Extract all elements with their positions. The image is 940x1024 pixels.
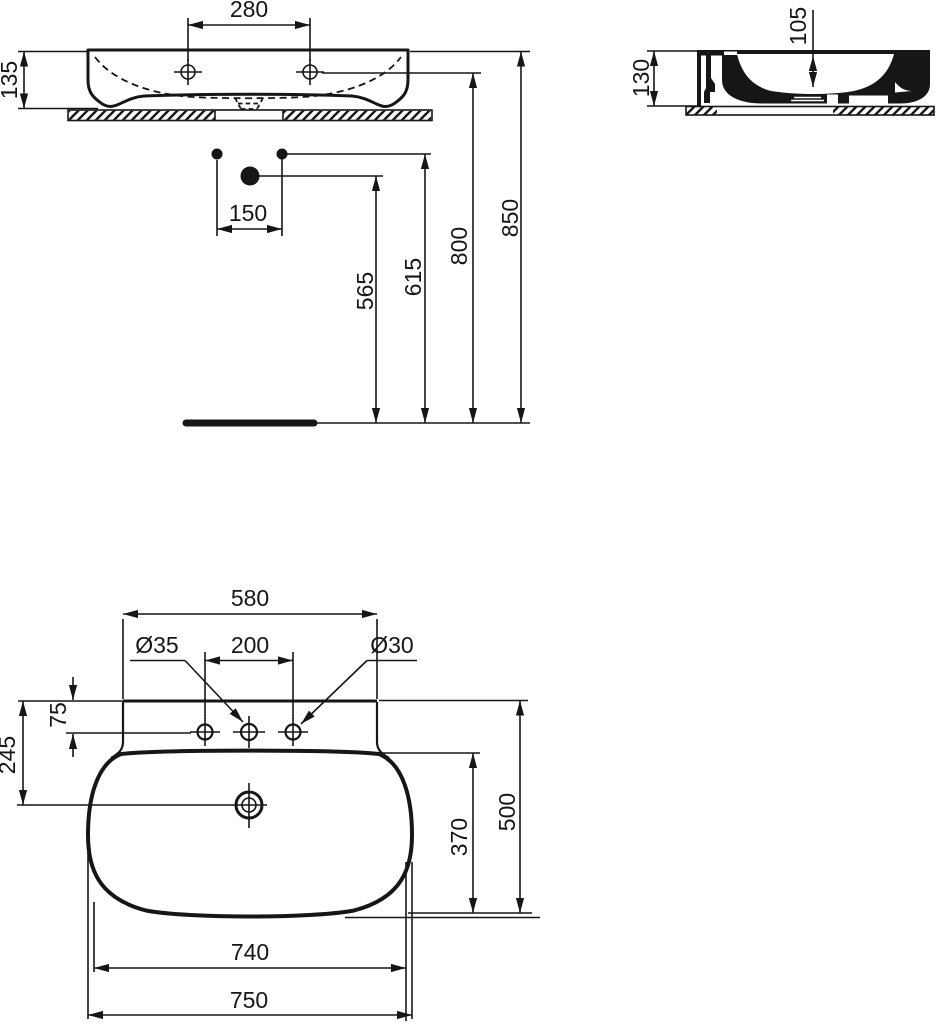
dim-500-label: 500 (494, 793, 520, 831)
dim-740-label: 740 (231, 939, 269, 965)
dim-750-label: 750 (230, 987, 268, 1013)
dim-615: 615 (400, 154, 426, 423)
dim-200: 200 (205, 632, 293, 719)
dim-75: 75 (45, 677, 73, 757)
dim-580-label: 580 (231, 585, 269, 611)
dim-800: 800 (446, 73, 473, 423)
front-view: 280 135 150 (0, 0, 530, 423)
dim-800-label: 800 (446, 227, 472, 265)
dim-105-label: 105 (785, 7, 811, 45)
washbasin-dimension-drawing: 280 135 150 (0, 0, 940, 1024)
dim-150: 150 (217, 200, 282, 229)
side-wall-bracket (704, 55, 715, 103)
dim-75-label: 75 (45, 702, 71, 728)
front-drain-dashed (235, 98, 263, 109)
callout-dia-35: Ø35 (130, 632, 243, 722)
dim-850-label: 850 (497, 199, 523, 237)
callout-dia-35-label: Ø35 (135, 632, 178, 658)
dim-500: 500 (494, 701, 520, 914)
dim-245-label: 245 (0, 736, 20, 774)
dim-850: 850 (497, 52, 523, 424)
dim-370: 370 (446, 753, 473, 913)
side-view: 130 105 (628, 7, 934, 115)
front-counter-section (68, 110, 432, 121)
plan-bowl-outline (88, 751, 412, 917)
side-counter-section (686, 107, 934, 116)
dim-130-label: 130 (628, 59, 654, 97)
callout-dia-30: Ø30 (301, 632, 417, 724)
dim-565-label: 565 (352, 272, 378, 310)
side-left-edge (697, 50, 701, 106)
technical-drawing-page: 280 135 150 (0, 0, 940, 1024)
fixing-dot-left (212, 149, 223, 160)
dim-615-label: 615 (400, 258, 426, 296)
callout-dia-30-label: Ø30 (370, 632, 413, 658)
dim-135: 135 (0, 52, 98, 109)
plan-tap-hole-left (190, 718, 220, 746)
plan-tap-hole-center (233, 716, 265, 748)
dim-280-label: 280 (230, 0, 268, 22)
dim-200-label: 200 (231, 632, 269, 658)
dim-130: 130 (628, 51, 699, 106)
dim-150-label: 150 (229, 200, 267, 226)
plan-view: 580 200 Ø35 Ø30 (0, 585, 540, 1021)
dim-135-label: 135 (0, 61, 22, 99)
dim-370-label: 370 (446, 818, 472, 856)
dim-565: 565 (352, 176, 378, 423)
dim-245: 245 (0, 701, 23, 805)
